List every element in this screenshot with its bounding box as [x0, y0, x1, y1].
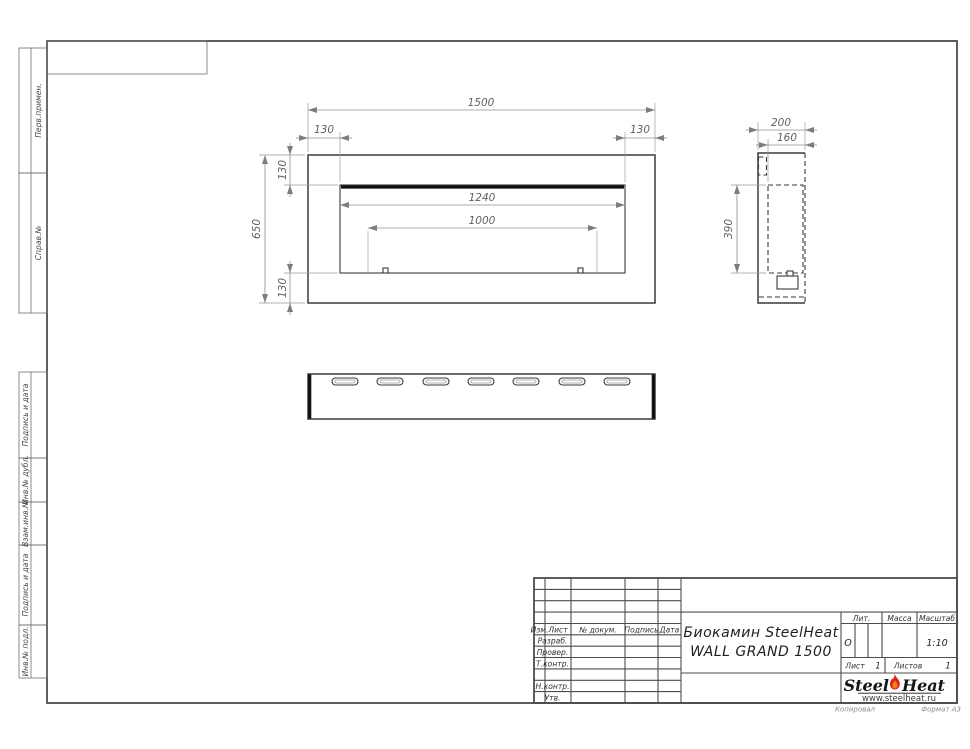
tb-col-izm: Изм.: [531, 626, 549, 635]
footer-copied-label: Копировал: [835, 706, 876, 714]
front-view: 1500 130 130 650 130 130 1240 1000: [251, 97, 667, 315]
tb-mass-label: Масса: [887, 614, 912, 623]
tb-row-tkontr: Т.контр.: [536, 659, 569, 668]
tb-row-prover: Провер.: [537, 648, 569, 657]
side-view: 200 160 390: [723, 117, 817, 303]
dim-front-offset-left: 130: [314, 124, 334, 136]
tb-sheet-value: 1: [875, 662, 880, 672]
tb-sheets-value: 1: [945, 662, 950, 672]
plan-view: [308, 374, 655, 419]
corner-stamp-box: [47, 41, 207, 74]
tb-col-podpis: Подпись: [624, 626, 658, 635]
dim-front-offset-top: 130: [277, 160, 289, 180]
dim-front-burner-length: 1000: [469, 215, 496, 227]
tb-lit-value: О: [844, 638, 852, 649]
doc-title-line2: WALL GRAND 1500: [690, 644, 832, 660]
logo-text-heat: Heat: [901, 676, 946, 695]
flame-icon: [890, 674, 900, 690]
tb-scale-value: 1:10: [926, 638, 947, 649]
dim-front-opening-width: 1240: [469, 192, 496, 204]
tb-col-list: Лист: [547, 626, 568, 635]
margin-label-sprav-no: Справ.№: [34, 226, 43, 261]
tb-col-docnum: № докум.: [578, 626, 616, 635]
margin-label-perv-primen: Перв.примен.: [34, 83, 43, 138]
doc-title-line1: Биокамин SteelHeat: [683, 625, 838, 641]
side-burner-notch: [787, 271, 793, 276]
tb-row-nkontr: Н.контр.: [536, 682, 570, 691]
tb-lit-label: Лит.: [852, 614, 870, 623]
dim-side-opening-height: 390: [723, 219, 735, 239]
dim-front-overall-width: 1500: [468, 97, 495, 109]
tb-row-utv: Утв.: [545, 693, 561, 702]
margin-label-vzam-inv: Взам.инв.№: [21, 500, 30, 547]
logo-text-steel: Steel: [844, 676, 889, 695]
steelheat-logo: Steel Heat www.steelheat.ru: [844, 674, 946, 704]
dim-front-offset-right: 130: [630, 124, 650, 136]
margin-label-inv-podl: Инв.№ подл.: [21, 627, 30, 677]
tb-col-data: Дата: [659, 626, 680, 635]
front-burner-tab-right: [578, 268, 583, 273]
dim-side-inner-depth: 160: [777, 132, 797, 144]
dim-front-overall-height: 650: [251, 219, 263, 239]
dim-front-offset-bottom: 130: [277, 278, 289, 298]
tb-scale-label: Масштаб: [919, 614, 955, 623]
dim-side-depth: 200: [771, 117, 791, 129]
drawing-canvas: Перв.примен. Справ.№ Подпись и дата Инв.…: [0, 0, 970, 749]
sheet-frame: [47, 41, 957, 703]
margin-label-podpis-data-1: Подпись и дата: [21, 383, 30, 446]
margin-label-inv-dubl: Инв.№ дубл.: [21, 455, 30, 505]
front-burner-tab-left: [383, 268, 388, 273]
margin-label-podpis-data-2: Подпись и дата: [21, 553, 30, 616]
drawing-sheet: Перв.примен. Справ.№ Подпись и дата Инв.…: [0, 0, 970, 749]
footer-notes: Копировал Формат А3: [835, 706, 961, 714]
tb-sheet-label: Лист: [844, 662, 865, 671]
left-margin-boxes: Перв.примен. Справ.№ Подпись и дата Инв.…: [19, 48, 47, 678]
footer-format-label: Формат А3: [921, 706, 961, 714]
side-burner-box: [777, 276, 798, 289]
title-block: Изм. Лист № докум. Подпись Дата Разраб. …: [531, 578, 957, 704]
logo-website: www.steelheat.ru: [862, 694, 936, 704]
tb-row-razrab: Разраб.: [538, 637, 568, 646]
tb-sheets-label: Листов: [893, 662, 923, 671]
